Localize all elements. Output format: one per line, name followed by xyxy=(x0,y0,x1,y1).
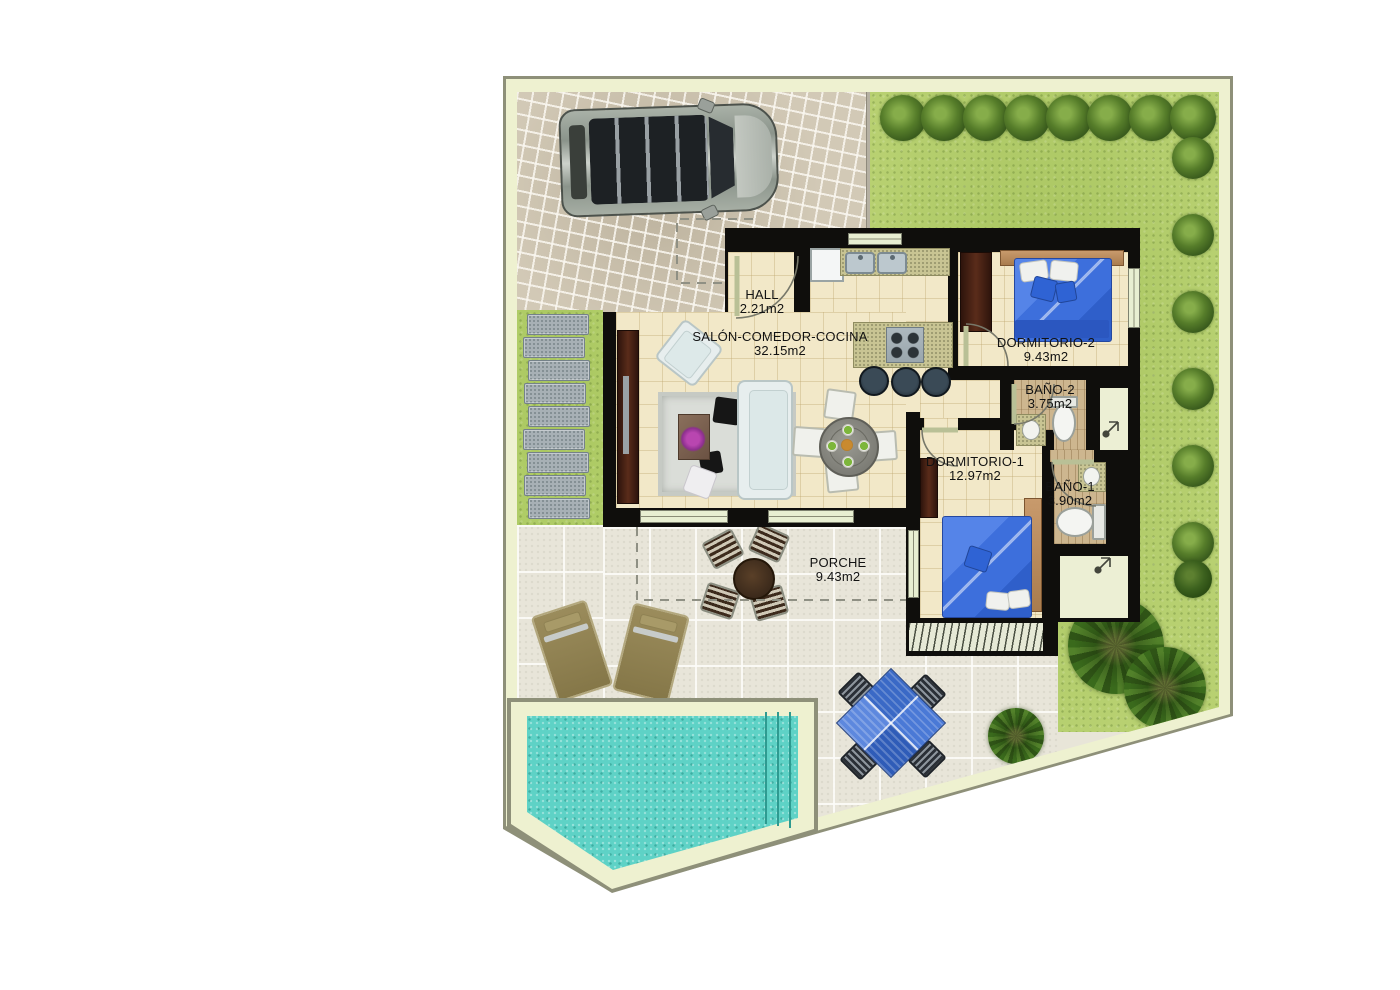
drain-icon xyxy=(1106,422,1118,434)
plan-annotations xyxy=(0,0,1400,990)
label-bano2: BAÑO-2 3.75m2 xyxy=(1025,383,1075,411)
room-name: DORMITORIO-2 xyxy=(997,336,1095,350)
floor-plan-canvas: HALL 2.21m2 SALÓN-COMEDOR-COCINA 32.15m2… xyxy=(0,0,1400,990)
label-dormitorio1: DORMITORIO-1 12.97m2 xyxy=(926,455,1024,483)
room-area: 9.43m2 xyxy=(997,350,1095,364)
room-name: HALL xyxy=(740,288,785,302)
room-area: 12.97m2 xyxy=(926,469,1024,483)
pool-steps xyxy=(766,712,790,828)
room-name: BAÑO-1 xyxy=(1045,480,1095,494)
label-hall: HALL 2.21m2 xyxy=(740,288,785,316)
room-area: 3.90m2 xyxy=(1045,494,1095,508)
label-porche: PORCHE 9.43m2 xyxy=(810,556,867,584)
canopy-boundary-dashed xyxy=(677,219,753,283)
room-area: 9.43m2 xyxy=(810,570,867,584)
room-name: PORCHE xyxy=(810,556,867,570)
room-name: SALÓN-COMEDOR-COCINA xyxy=(692,330,867,344)
label-salon: SALÓN-COMEDOR-COCINA 32.15m2 xyxy=(692,330,867,358)
drain-icon xyxy=(1098,558,1110,570)
room-name: DORMITORIO-1 xyxy=(926,455,1024,469)
drain-icons xyxy=(1095,422,1118,573)
room-area: 3.75m2 xyxy=(1025,397,1075,411)
room-area: 32.15m2 xyxy=(692,344,867,358)
room-area: 2.21m2 xyxy=(740,302,785,316)
label-bano1: BAÑO-1 3.90m2 xyxy=(1045,480,1095,508)
label-dormitorio2: DORMITORIO-2 9.43m2 xyxy=(997,336,1095,364)
room-name: BAÑO-2 xyxy=(1025,383,1075,397)
door-arcs xyxy=(736,256,1096,506)
